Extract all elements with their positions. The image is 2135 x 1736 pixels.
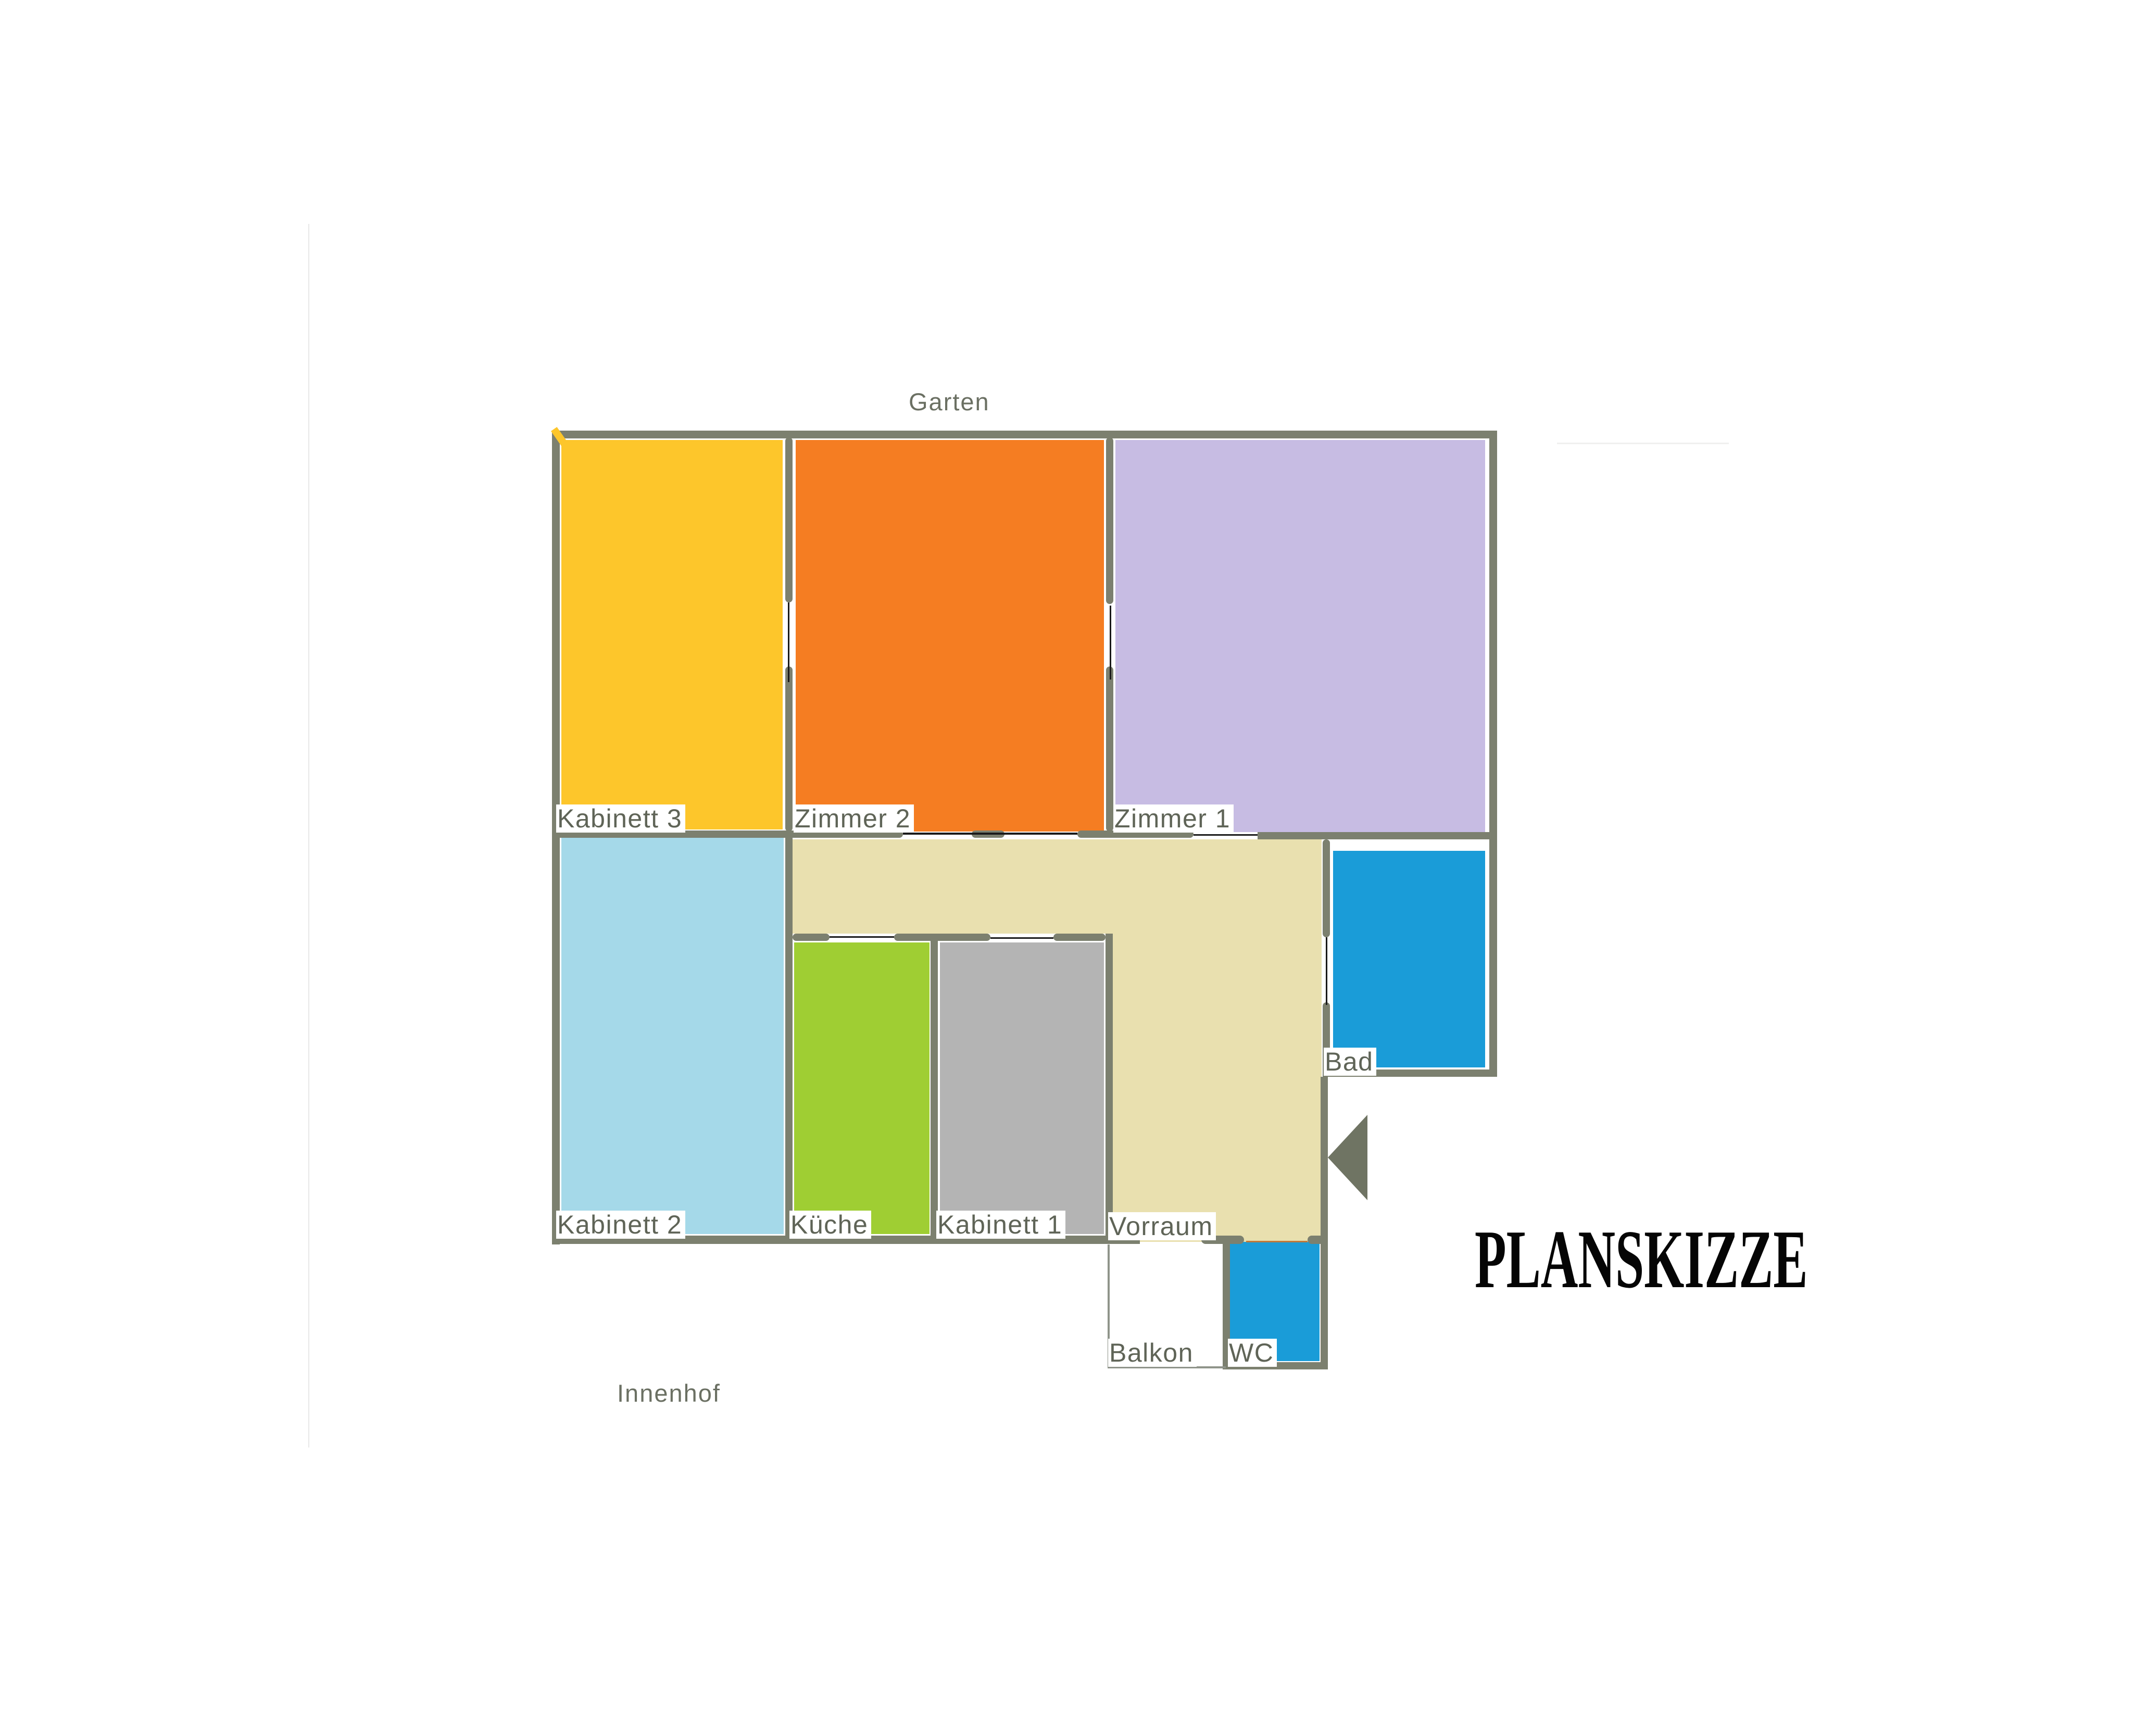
scan-artifact-smudge — [1557, 443, 1729, 444]
room-label-kueche: Küche — [789, 1211, 871, 1239]
scan-artifact-line — [308, 224, 309, 1448]
room-label-wc: WC — [1228, 1339, 1277, 1367]
wall-zimmer2-zimmer1-lower — [1106, 666, 1113, 832]
room-label-kabinett-2: Kabinett 2 — [556, 1211, 685, 1239]
wall-outer-right — [1489, 431, 1497, 1077]
door-line-zimmer2-zimmer1 — [1110, 606, 1111, 680]
door-line-bad — [1326, 937, 1327, 1005]
room-fill-bad — [1333, 851, 1485, 1067]
door-line-kabinett3-zimmer2 — [788, 602, 789, 682]
door-line-wc — [1246, 1241, 1308, 1242]
door-line-kueche — [830, 936, 894, 938]
room-fill-kueche — [794, 942, 930, 1234]
room-label-balkon: Balkon — [1108, 1339, 1197, 1367]
door-line-zimmer2-vorraum — [903, 833, 1077, 835]
wall-kueche-top-left — [793, 934, 830, 941]
wall-kabinett3-zimmer2-lower — [785, 666, 793, 832]
wall-kabinett3-zimmer2-upper — [785, 437, 793, 602]
room-label-bad: Bad — [1324, 1048, 1376, 1076]
room-label-kabinett-1: Kabinett 1 — [936, 1211, 1065, 1239]
wall-kabinett1-vorraum — [1106, 934, 1113, 1236]
wall-kab1-top-right — [1053, 934, 1106, 941]
wall-kabinett2-right — [785, 831, 793, 1237]
room-label-kabinett-3: Kabinett 3 — [556, 804, 685, 833]
wall-kueche-kab1-top — [894, 934, 990, 941]
door-line-zimmer1-vorraum — [1194, 834, 1258, 836]
wall-kueche-kabinett1 — [931, 934, 938, 1236]
room-label-zimmer-2: Zimmer 2 — [794, 804, 914, 833]
courtyard-label: Innenhof — [617, 1381, 721, 1405]
room-fill-kabinett-3 — [561, 440, 783, 829]
door-line-kabinett1 — [990, 937, 1053, 939]
entrance-arrow-icon — [1328, 1115, 1367, 1200]
room-fill-kabinett-2 — [561, 837, 784, 1234]
garden-label: Garten — [909, 389, 990, 414]
room-fill-kabinett-1 — [940, 942, 1104, 1234]
wall-mid-seg-far-right — [1258, 832, 1497, 839]
room-label-vorraum: Vorraum — [1108, 1212, 1216, 1240]
room-label-zimmer-1: Zimmer 1 — [1113, 804, 1234, 833]
floor-plan-page: Kabinett 3 Zimmer 2 Zimmer 1 Kabinett 2 … — [0, 0, 2135, 1736]
room-fill-vorraum-upper — [793, 839, 1322, 934]
plan-title: PLANSKIZZE — [1475, 1217, 1807, 1301]
room-fill-zimmer-2 — [796, 440, 1104, 832]
wall-bad-left-upper — [1323, 839, 1330, 937]
room-fill-zimmer-1 — [1115, 440, 1485, 832]
wall-zimmer2-zimmer1-upper — [1106, 437, 1113, 604]
wall-vorraum-right — [1321, 1077, 1328, 1369]
wall-outer-top — [552, 431, 1497, 438]
room-fill-vorraum-lower — [1113, 932, 1322, 1242]
